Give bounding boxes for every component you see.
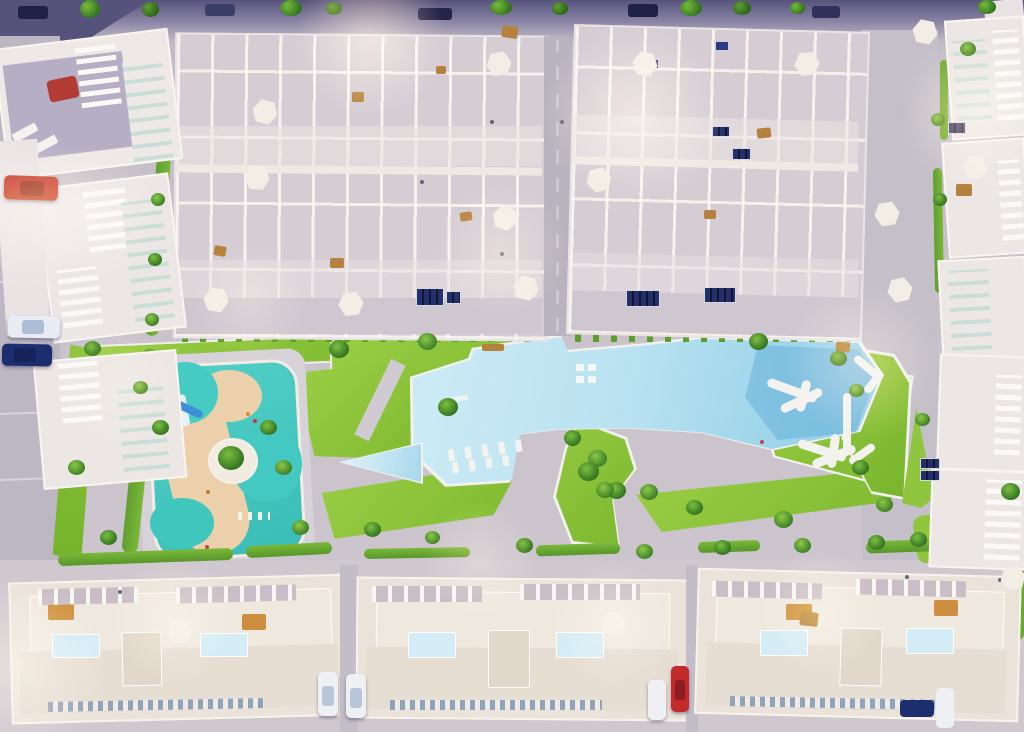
wood-table bbox=[501, 25, 519, 39]
island-palm bbox=[218, 446, 244, 470]
parked-car-dark bbox=[812, 6, 840, 18]
palm-tree bbox=[329, 340, 349, 358]
wood-table bbox=[352, 92, 364, 102]
person-speck bbox=[490, 120, 494, 124]
window-strip bbox=[176, 584, 296, 603]
hedge-tree bbox=[960, 42, 976, 56]
pool-steps bbox=[588, 364, 596, 371]
palm-tree bbox=[68, 460, 85, 475]
glass-skylight bbox=[52, 634, 100, 658]
tree bbox=[280, 0, 302, 16]
block-a-terrace-band bbox=[176, 126, 542, 166]
palm-tree bbox=[876, 497, 893, 512]
palm-tree bbox=[749, 333, 768, 350]
palm-tree bbox=[275, 460, 292, 475]
glass-skylight bbox=[408, 632, 456, 658]
pergola-stripes bbox=[997, 159, 1024, 240]
pergola-stripes bbox=[57, 360, 102, 423]
parked-car-dark bbox=[418, 8, 452, 20]
solar-panels bbox=[626, 290, 660, 307]
block-b-terrace-band bbox=[571, 114, 858, 163]
palm-tree bbox=[849, 384, 864, 397]
solar-panels bbox=[416, 288, 444, 306]
blue-panel bbox=[716, 42, 728, 50]
pergola-stripes bbox=[994, 375, 1023, 456]
window-strip bbox=[856, 579, 966, 598]
palm-tree bbox=[910, 532, 927, 547]
orange-loungers bbox=[48, 604, 74, 620]
car-white-roof bbox=[350, 688, 362, 708]
palm-tree bbox=[84, 341, 101, 356]
car-navy-roof bbox=[14, 348, 36, 362]
person-speck bbox=[420, 180, 424, 184]
solar-panels bbox=[920, 470, 940, 481]
car-red-roof bbox=[675, 680, 685, 700]
person-speck bbox=[118, 590, 122, 594]
tree bbox=[978, 0, 996, 14]
wood-table bbox=[330, 258, 344, 268]
palm-tree bbox=[640, 484, 658, 500]
palm-tree bbox=[794, 538, 811, 553]
palm-tree bbox=[852, 460, 869, 475]
wood-table bbox=[436, 66, 446, 74]
palm-tree bbox=[774, 511, 793, 528]
solar-panels bbox=[732, 148, 751, 160]
hedge-tree bbox=[1001, 483, 1020, 500]
person-speck bbox=[205, 545, 209, 549]
solar-panels bbox=[920, 458, 940, 469]
palm-tree bbox=[516, 538, 533, 553]
solar-panels bbox=[704, 287, 736, 303]
palm-tree bbox=[564, 430, 581, 446]
hedge-tree bbox=[933, 193, 947, 206]
parked-car-dark bbox=[18, 6, 48, 19]
block-path-line bbox=[556, 40, 559, 332]
winding-path bbox=[843, 393, 851, 451]
person-speck bbox=[760, 440, 764, 444]
palm-tree bbox=[418, 333, 437, 350]
wood-table bbox=[757, 127, 772, 138]
tree bbox=[733, 1, 751, 15]
parked-car-dark bbox=[628, 4, 658, 17]
hedge-tree bbox=[931, 113, 945, 126]
wood-table bbox=[704, 210, 716, 219]
person-speck bbox=[560, 120, 564, 124]
float-speck bbox=[246, 412, 250, 416]
glass-skylight bbox=[556, 632, 604, 658]
hedge-tree bbox=[148, 253, 162, 266]
float-speck bbox=[206, 490, 210, 494]
stair-tower bbox=[839, 627, 883, 686]
stair-tower bbox=[488, 630, 530, 688]
palm-tree bbox=[438, 398, 458, 416]
person-speck bbox=[905, 575, 909, 579]
tree bbox=[552, 2, 568, 15]
orange-loungers bbox=[242, 614, 266, 630]
car-navy bbox=[900, 700, 934, 717]
orange-loungers bbox=[934, 600, 958, 616]
palm-tree bbox=[686, 500, 703, 515]
hedge-row bbox=[364, 547, 470, 559]
bench bbox=[482, 344, 504, 351]
car-red-roof bbox=[20, 181, 45, 197]
window-strip bbox=[712, 581, 822, 600]
window-strip bbox=[372, 586, 482, 602]
palm-tree bbox=[292, 520, 309, 535]
wood-table bbox=[956, 184, 972, 196]
palm-tree bbox=[152, 420, 169, 435]
hedge-tree bbox=[151, 193, 165, 206]
skylight-band bbox=[390, 700, 602, 710]
person-speck bbox=[500, 252, 504, 256]
pool-steps bbox=[576, 364, 584, 371]
palm-tree bbox=[830, 351, 847, 366]
solar-panels bbox=[446, 291, 461, 304]
palm-tree bbox=[636, 544, 653, 559]
paddle-steps bbox=[238, 512, 270, 520]
tree bbox=[790, 2, 805, 14]
pergola-stripes bbox=[57, 266, 104, 328]
glass-skylight bbox=[760, 630, 808, 656]
parked-car-dark bbox=[205, 4, 235, 16]
window-strip bbox=[38, 587, 138, 606]
palm-tree bbox=[260, 420, 277, 435]
tree bbox=[326, 2, 342, 15]
palm-tree bbox=[133, 381, 148, 394]
palm-tree bbox=[364, 522, 381, 537]
palm-tree bbox=[868, 535, 885, 550]
car-white bbox=[936, 688, 954, 728]
pool-steps bbox=[588, 376, 596, 383]
aerial-residential-render bbox=[0, 0, 1024, 732]
palm-tree bbox=[100, 530, 117, 545]
solar-panels bbox=[712, 126, 730, 137]
pergola-stripes bbox=[74, 38, 122, 108]
car-white bbox=[648, 680, 666, 720]
solar-panels bbox=[948, 122, 966, 134]
tree bbox=[680, 0, 702, 16]
wood-table bbox=[213, 245, 227, 257]
peninsula-palm bbox=[578, 462, 599, 481]
window-strip bbox=[520, 584, 640, 600]
wood-table bbox=[459, 211, 472, 222]
pool-steps bbox=[576, 376, 584, 383]
glass-skylight bbox=[906, 628, 954, 654]
float-speck bbox=[253, 419, 257, 423]
glass-skylight bbox=[200, 633, 248, 657]
wood-table bbox=[799, 611, 818, 627]
car-white-roof bbox=[322, 686, 334, 706]
hedge-tree bbox=[145, 313, 159, 326]
tree bbox=[142, 2, 159, 17]
tree bbox=[80, 0, 100, 18]
tree bbox=[490, 0, 512, 15]
water-carve bbox=[150, 498, 214, 548]
peninsula-palm bbox=[596, 482, 614, 498]
facade-windows bbox=[948, 269, 992, 351]
palm-tree bbox=[714, 540, 731, 555]
car-white-roof bbox=[22, 320, 44, 334]
palm-tree bbox=[915, 413, 930, 426]
palm-tree bbox=[425, 531, 440, 544]
stair-tower bbox=[122, 632, 163, 687]
